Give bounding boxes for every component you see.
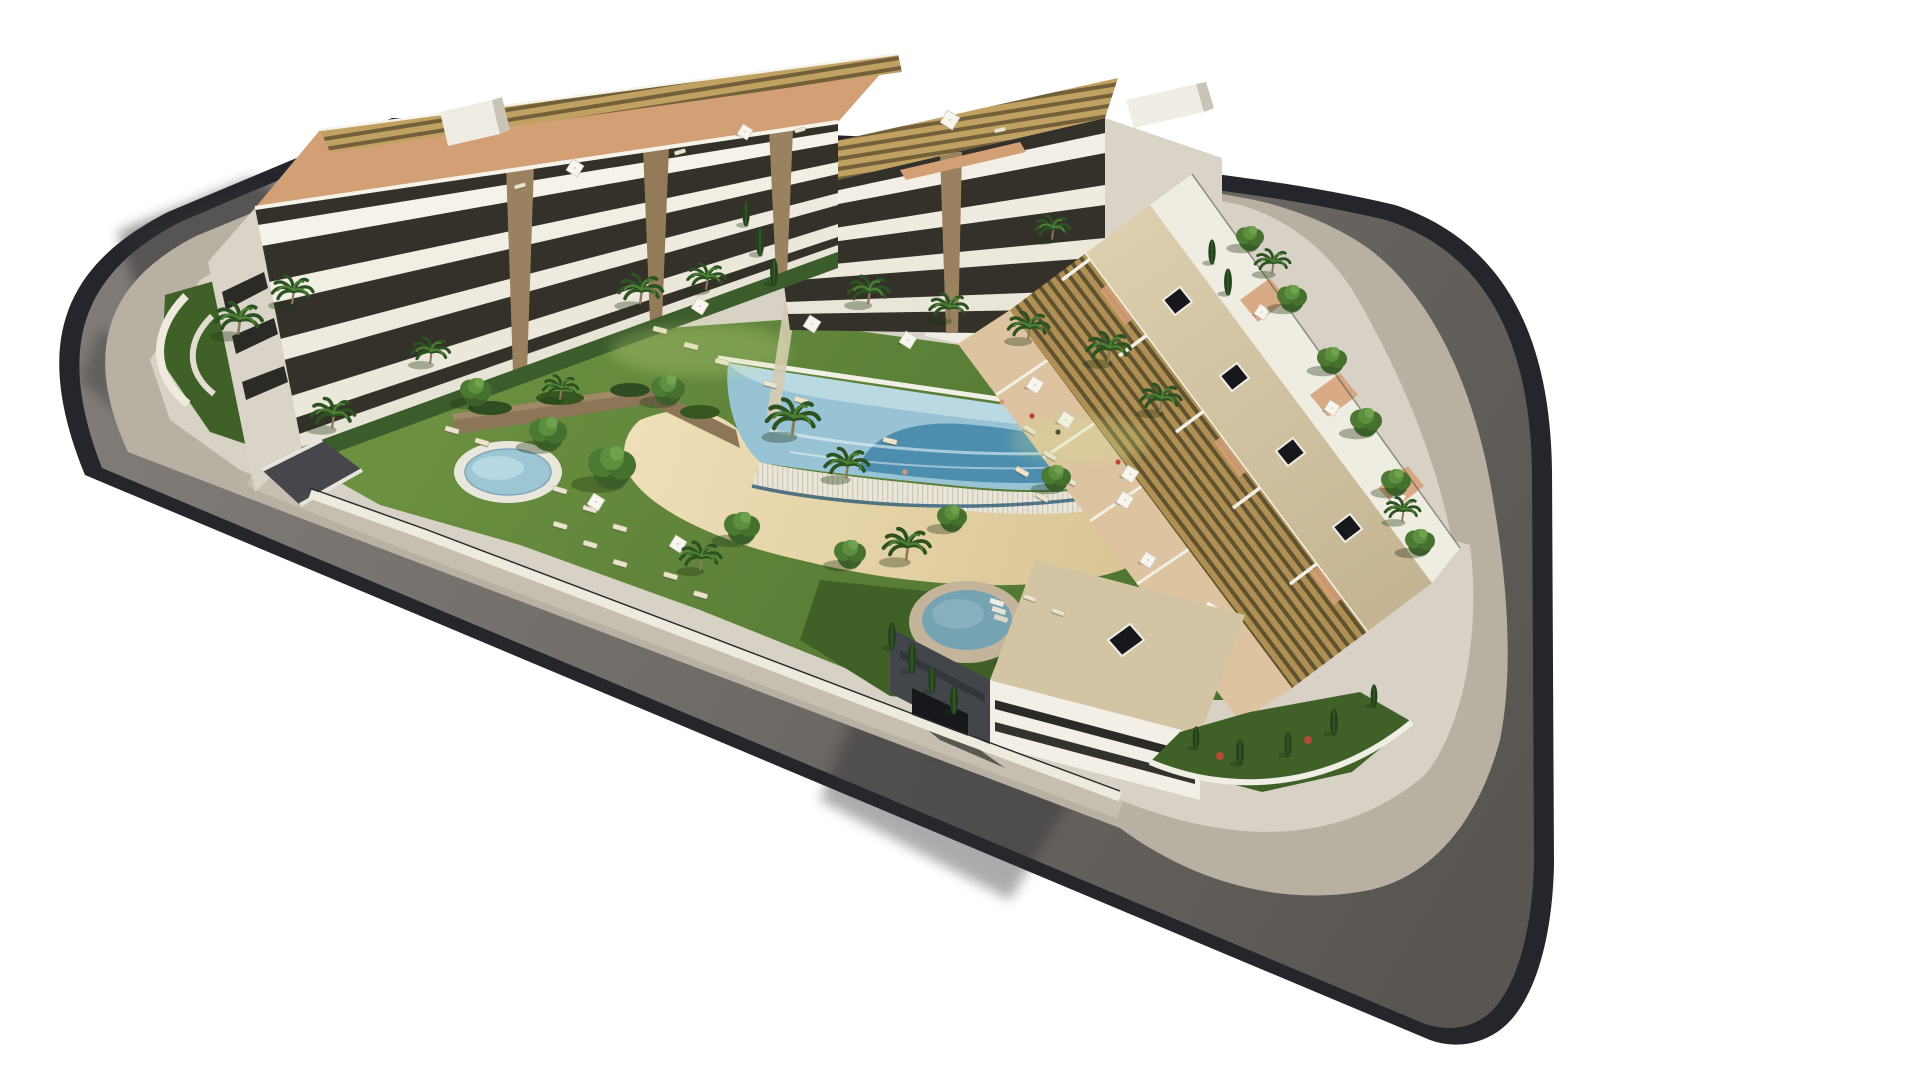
aerial-render xyxy=(0,0,1920,1080)
render-canvas xyxy=(0,0,1920,1080)
